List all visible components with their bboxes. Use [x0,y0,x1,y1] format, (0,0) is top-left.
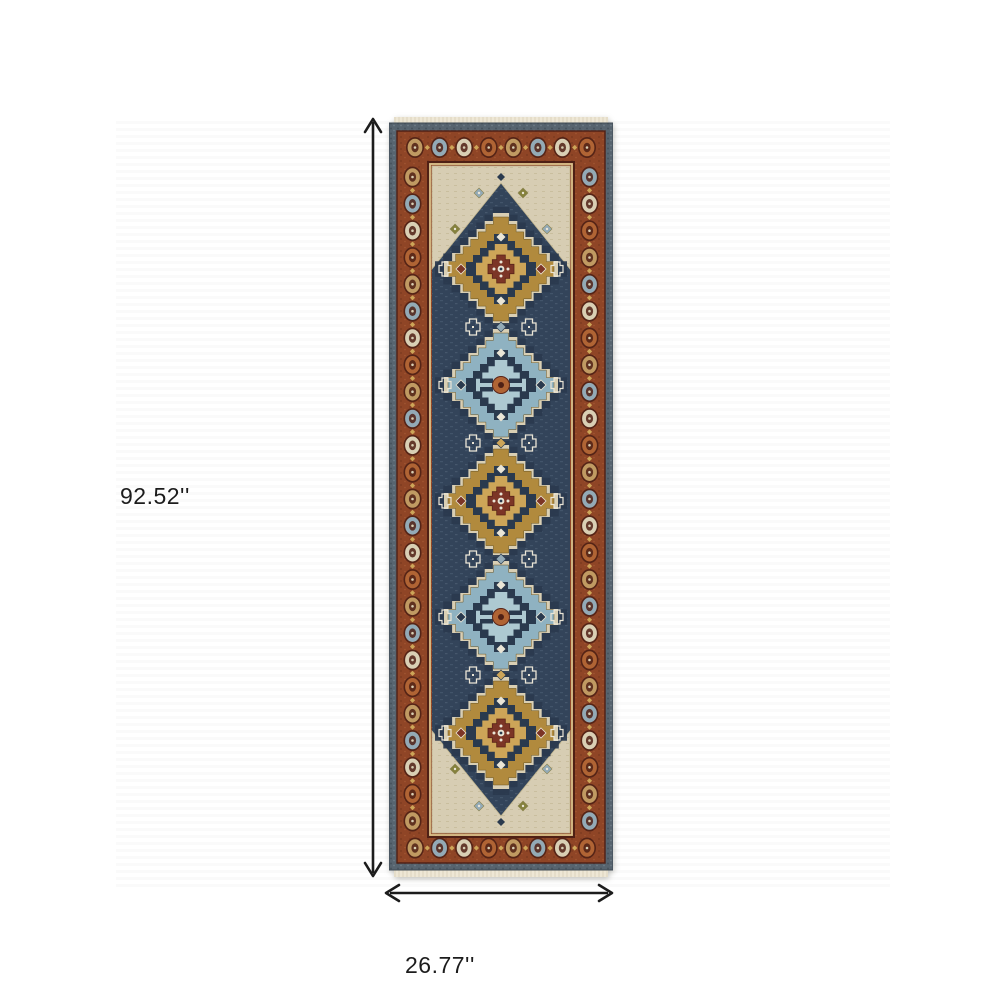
width-dimension-arrow [382,882,616,904]
height-dimension-label: 92.52'' [120,483,190,510]
width-dimension-label: 26.77'' [405,952,475,979]
rug-illustration [389,117,613,878]
product-image-canvas: 92.52'' 26.77'' [0,0,1000,1000]
rug-photo [389,117,613,878]
height-dimension-arrow [362,114,384,881]
